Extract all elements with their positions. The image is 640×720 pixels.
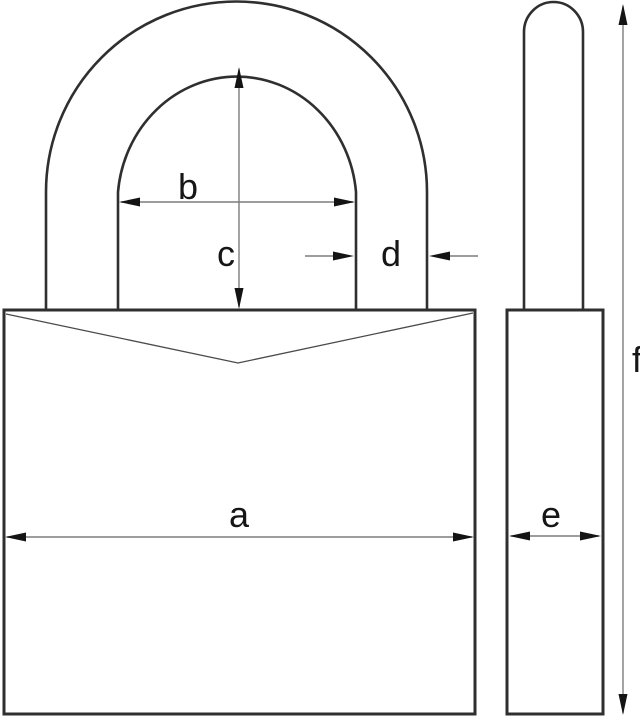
front-view: b c d a — [4, 1, 478, 714]
dimension-c-label: c — [217, 233, 235, 274]
arrowhead-left-icon — [429, 252, 450, 261]
dimension-b-label: b — [178, 166, 198, 207]
dimension-d-label: d — [381, 233, 401, 274]
front-shackle-outer-outline — [46, 1, 427, 310]
arrowhead-right-icon — [334, 198, 355, 207]
arrowhead-down-icon — [235, 288, 244, 309]
front-shackle-inner-outline — [118, 77, 356, 310]
diagram-canvas: b c d a — [0, 0, 640, 720]
dimension-b: b — [119, 166, 355, 207]
arrowhead-left-icon — [119, 198, 140, 207]
dimension-f: f — [619, 4, 640, 715]
arrowhead-right-icon — [333, 252, 354, 261]
dimension-e-label: e — [541, 494, 561, 535]
arrowhead-down-icon — [619, 694, 628, 715]
dimension-c: c — [217, 67, 244, 309]
side-shackle-outline — [524, 2, 583, 310]
side-view: e — [507, 2, 603, 714]
dimension-d: d — [305, 233, 478, 274]
dimension-f-label: f — [632, 339, 640, 380]
arrowhead-up-icon — [619, 4, 628, 25]
padlock-dimension-diagram: b c d a — [0, 0, 640, 720]
dimension-a-label: a — [229, 494, 250, 535]
